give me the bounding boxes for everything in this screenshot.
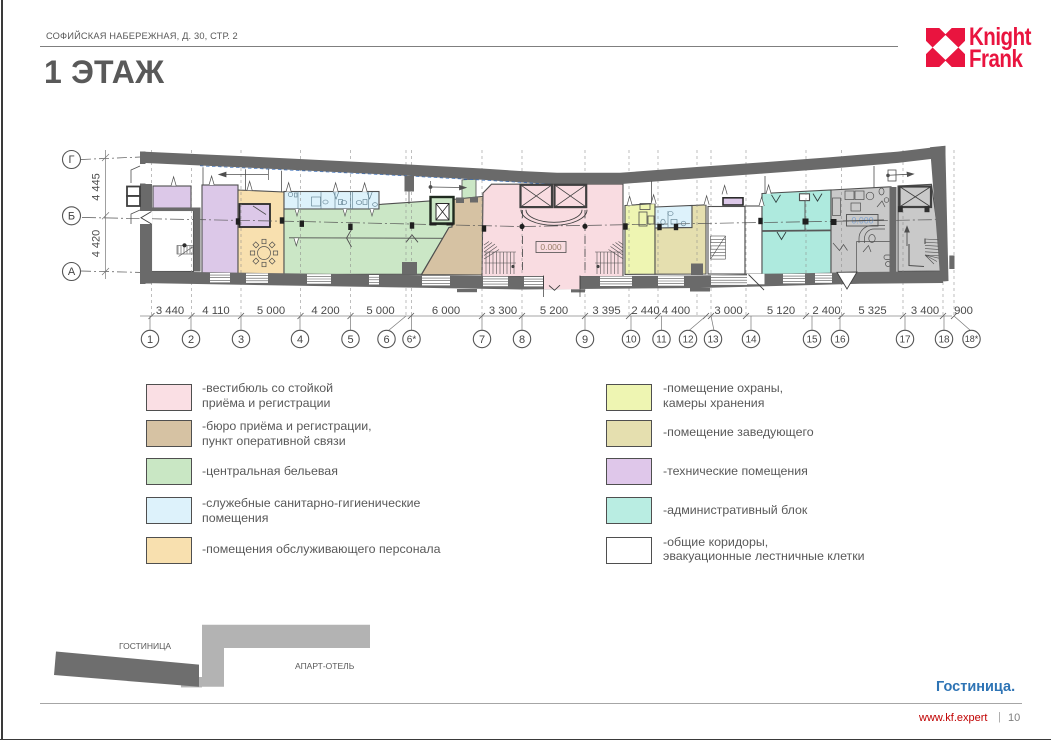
svg-text:6 000: 6 000: [432, 305, 460, 317]
svg-text:0.000: 0.000: [540, 242, 562, 252]
svg-text:4: 4: [297, 334, 303, 346]
svg-text:9: 9: [582, 334, 588, 346]
svg-text:5: 5: [347, 334, 353, 346]
svg-text:7: 7: [479, 334, 485, 346]
svg-text:14: 14: [745, 335, 757, 346]
svg-text:5 200: 5 200: [540, 305, 568, 317]
svg-text:1: 1: [147, 334, 153, 346]
svg-text:5 000: 5 000: [257, 305, 285, 317]
svg-text:3 440: 3 440: [156, 305, 184, 317]
svg-text:3 400: 3 400: [911, 305, 939, 317]
svg-text:15: 15: [806, 335, 818, 346]
svg-text:4 400: 4 400: [662, 305, 690, 317]
svg-text:12: 12: [682, 335, 694, 346]
svg-text:18: 18: [938, 335, 950, 346]
svg-text:4 420: 4 420: [91, 230, 103, 258]
svg-text:Б: Б: [68, 211, 75, 223]
svg-text:2 400: 2 400: [812, 305, 840, 317]
svg-text:8: 8: [519, 334, 525, 346]
svg-text:3 000: 3 000: [714, 305, 742, 317]
svg-text:3 300: 3 300: [489, 305, 517, 317]
svg-text:900: 900: [954, 305, 973, 317]
svg-text:Г: Г: [69, 154, 75, 166]
svg-text:5 325: 5 325: [858, 305, 886, 317]
svg-text:16: 16: [834, 335, 846, 346]
svg-text:13: 13: [707, 335, 719, 346]
svg-text:11: 11: [656, 335, 667, 346]
svg-text:5 120: 5 120: [767, 305, 795, 317]
svg-text:4 110: 4 110: [202, 305, 229, 317]
svg-text:5 000: 5 000: [366, 305, 394, 317]
svg-text:3 395: 3 395: [592, 305, 620, 317]
svg-text:10: 10: [625, 335, 637, 346]
svg-text:6: 6: [383, 334, 389, 346]
svg-text:2 440: 2 440: [631, 305, 659, 317]
svg-text:4 200: 4 200: [311, 305, 339, 317]
svg-text:А: А: [68, 266, 76, 278]
svg-text:3: 3: [238, 334, 244, 346]
svg-text:17: 17: [899, 335, 911, 346]
svg-text:4 445: 4 445: [91, 173, 103, 201]
svg-text:6*: 6*: [407, 335, 417, 346]
svg-text:2: 2: [188, 334, 194, 346]
svg-text:18*: 18*: [965, 334, 979, 344]
